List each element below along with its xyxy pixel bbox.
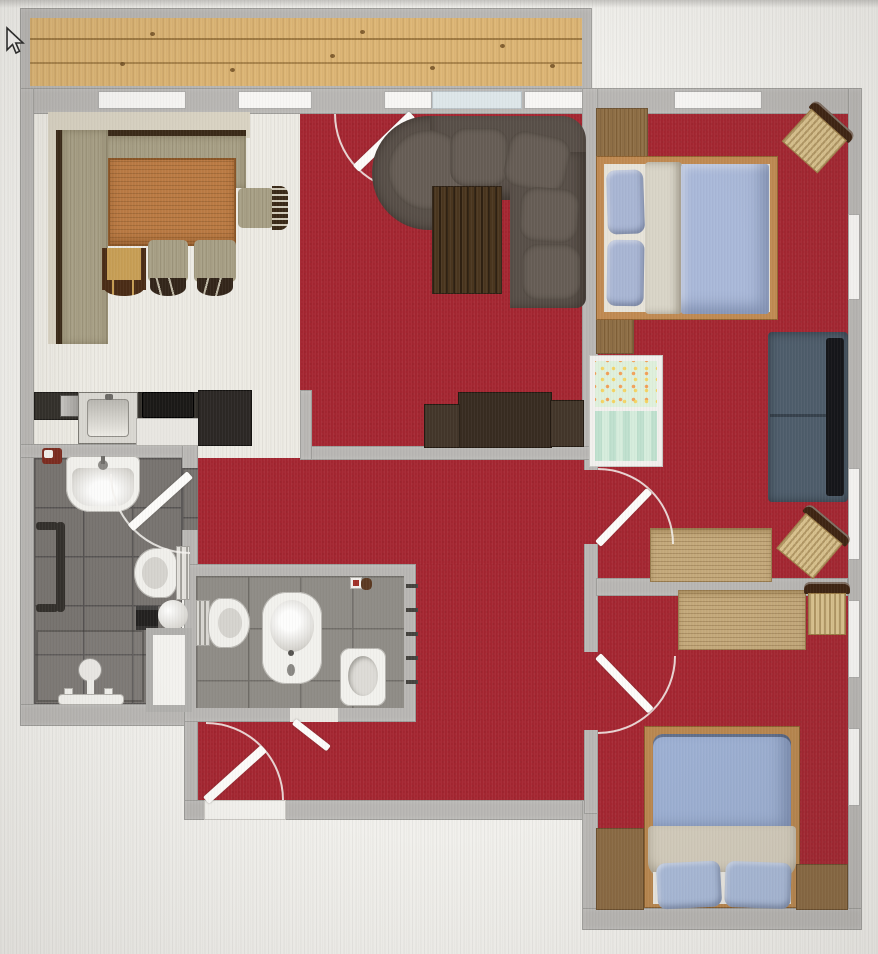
wall-radiator-mark [406, 584, 418, 588]
corner-bench-left[interactable] [56, 130, 108, 344]
duvet [681, 164, 769, 314]
window-top-1[interactable] [98, 91, 186, 109]
sideboard-right[interactable] [550, 400, 584, 447]
window-right-2[interactable] [848, 468, 860, 560]
wardrobe[interactable] [596, 108, 648, 158]
bedroom2-door-opening[interactable] [584, 652, 598, 730]
bathtub-fixture[interactable] [56, 658, 126, 706]
wall-radiator-mark [406, 632, 418, 636]
small-red-item[interactable] [42, 448, 62, 464]
left-wall [20, 88, 34, 726]
wooden-stool[interactable] [102, 248, 146, 298]
bed-pillow [606, 240, 644, 307]
window-right-1[interactable] [848, 214, 860, 300]
sideboard-main[interactable] [458, 392, 552, 448]
wall-radiator-mark [406, 608, 418, 612]
balcony-door-glass[interactable] [432, 91, 522, 109]
coffee-table[interactable] [432, 186, 502, 294]
low-cabinet-right[interactable] [796, 864, 848, 910]
duvet [653, 734, 791, 832]
sofa-cushion [450, 128, 508, 186]
window-top-5[interactable] [674, 91, 762, 109]
hallway-floor-right [416, 564, 584, 720]
double-bed[interactable] [596, 156, 778, 320]
wall-radiator-mark [406, 680, 418, 684]
desk-chair-bedroom2[interactable] [804, 582, 850, 636]
wc-shelf-item[interactable] [350, 576, 372, 591]
shower-cabin[interactable] [146, 628, 192, 712]
sideboard-left[interactable] [424, 404, 460, 448]
desk-bedroom2[interactable] [678, 590, 806, 650]
hallway-floor-upper [198, 458, 584, 564]
cooktop[interactable] [142, 392, 194, 418]
window-top-4[interactable] [524, 91, 584, 109]
dining-chair-2[interactable] [194, 240, 236, 296]
entrance-door-opening[interactable] [204, 800, 286, 820]
floor-plan-canvas [0, 0, 878, 954]
storage-box[interactable] [136, 606, 158, 630]
sofa-cushion [518, 186, 580, 244]
bedroom2-bottom-wall [582, 908, 862, 930]
foot-pillow [724, 861, 792, 909]
wall-radiator-mark [406, 656, 418, 660]
living-hall-wall [300, 446, 598, 460]
tall-cabinet[interactable] [198, 390, 252, 446]
kitchen-cabinet[interactable] [136, 418, 202, 446]
balcony-deck [30, 18, 582, 86]
dining-chair-1[interactable] [148, 240, 188, 296]
wc-basin[interactable] [340, 648, 386, 706]
chair-back [272, 186, 288, 230]
window-right-4[interactable] [848, 728, 860, 806]
low-cabinet-left[interactable] [596, 828, 644, 910]
bed-pillow [606, 169, 645, 234]
blanket-fold [645, 162, 682, 314]
single-bed[interactable] [644, 726, 800, 908]
bathroom-toilet[interactable] [134, 546, 190, 600]
dining-side-chair[interactable] [238, 186, 288, 230]
wc-bidet[interactable] [262, 592, 322, 684]
mouse-cursor [4, 26, 26, 56]
kitchen-stub-wall [300, 390, 312, 460]
foot-pillow [656, 860, 722, 909]
round-stool[interactable] [158, 600, 188, 630]
window-top-2[interactable] [238, 91, 312, 109]
dining-table[interactable] [108, 158, 236, 246]
bedroom1-door-opening[interactable] [584, 470, 598, 544]
crib[interactable] [590, 356, 662, 466]
photo-top-edge [0, 0, 878, 8]
window-top-3[interactable] [384, 91, 432, 109]
sofa-cushion [522, 244, 580, 300]
wc-toilet[interactable] [196, 598, 252, 650]
daybed-sofa[interactable] [768, 332, 848, 502]
sink-unit[interactable] [78, 392, 138, 444]
towel-radiator[interactable] [36, 518, 66, 616]
